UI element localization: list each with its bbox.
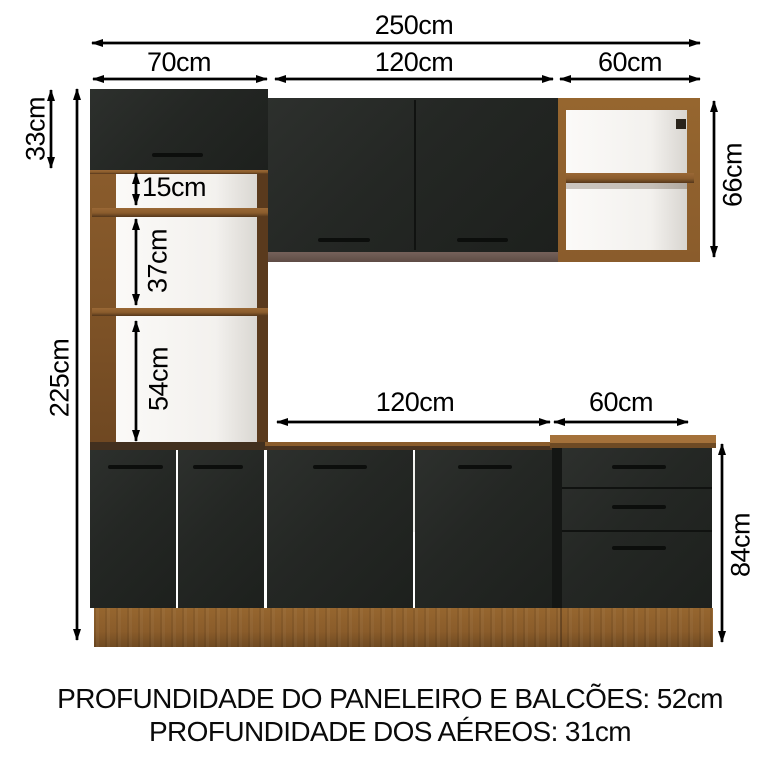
label-gap-37: 37cm xyxy=(143,229,174,293)
label-total-width: 250cm xyxy=(375,10,454,41)
label-base-mid-width: 120cm xyxy=(376,387,455,418)
label-gap-15: 15cm xyxy=(142,172,206,203)
label-top-left-width: 70cm xyxy=(147,47,211,78)
label-total-height: 225cm xyxy=(45,339,76,418)
depth-note-paneleiro-balcoes: PROFUNDIDADE DO PANELEIRO E BALCÕES: 52c… xyxy=(0,682,780,715)
kitchen-dimension-diagram: 250cm 70cm 120cm 60cm 33cm 225cm 15cm 37… xyxy=(0,0,780,780)
label-base-height: 84cm xyxy=(726,513,757,577)
label-base-right-width: 60cm xyxy=(589,387,653,418)
label-tower-door-height: 33cm xyxy=(21,97,52,161)
depth-note-aereos: PROFUNDIDADE DOS AÉREOS: 31cm xyxy=(0,715,780,748)
label-top-mid-width: 120cm xyxy=(375,47,454,78)
label-top-right-width: 60cm xyxy=(598,47,662,78)
label-wall-height: 66cm xyxy=(718,143,749,207)
label-gap-54: 54cm xyxy=(144,347,175,411)
depth-notes: PROFUNDIDADE DO PANELEIRO E BALCÕES: 52c… xyxy=(0,682,780,748)
